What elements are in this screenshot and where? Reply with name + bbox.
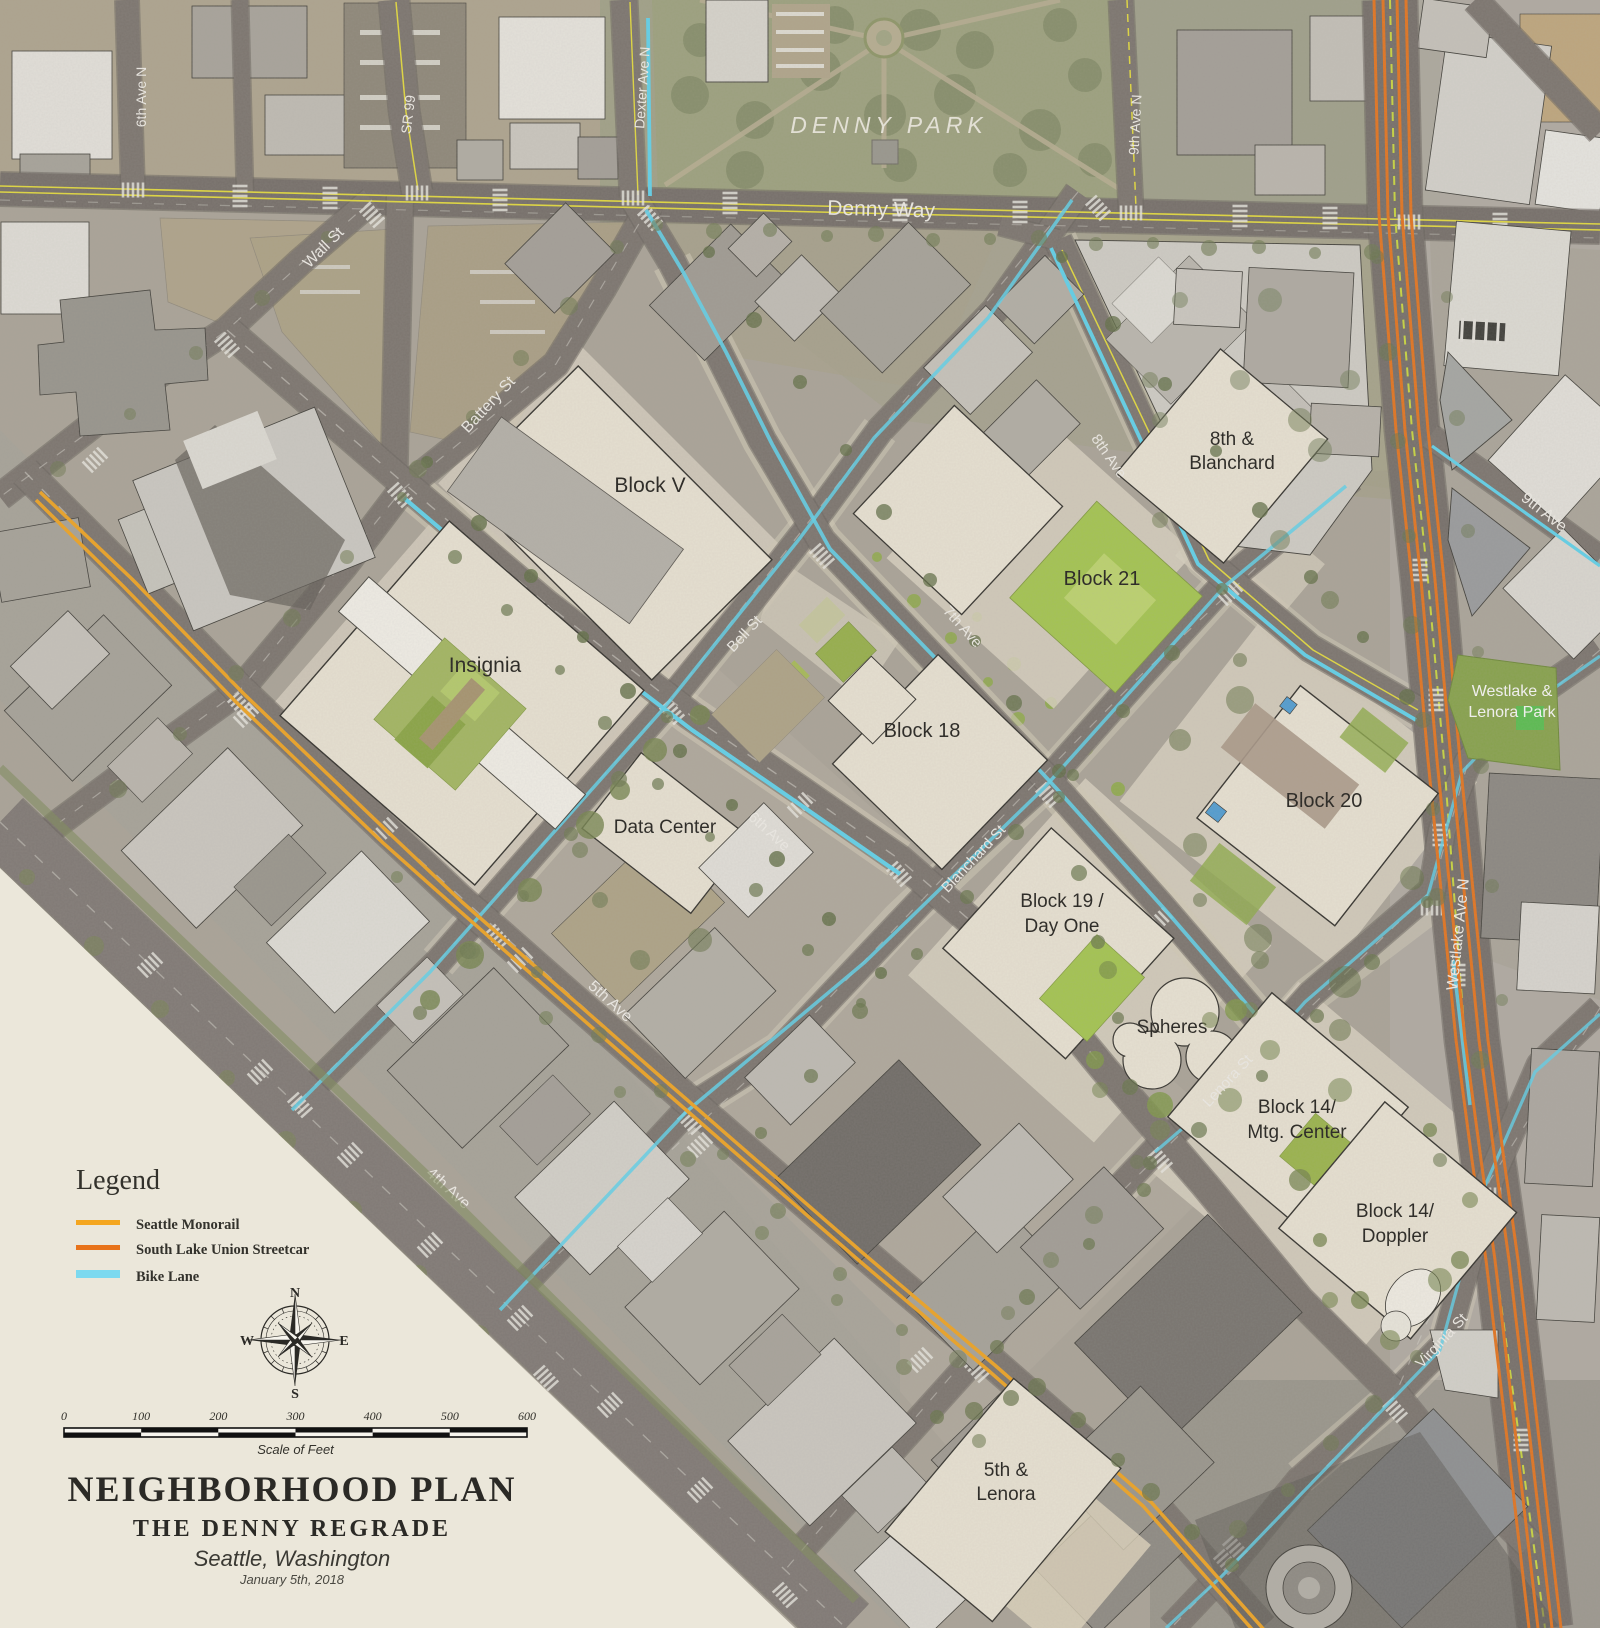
svg-text:E: E	[339, 1334, 348, 1349]
svg-text:200: 200	[209, 1409, 227, 1423]
svg-text:W: W	[240, 1334, 254, 1349]
svg-text:100: 100	[132, 1409, 150, 1423]
svg-text:Legend: Legend	[76, 1165, 160, 1196]
svg-text:400: 400	[364, 1409, 382, 1423]
svg-text:600: 600	[518, 1409, 536, 1423]
svg-text:Seattle, Washington: Seattle, Washington	[194, 1546, 391, 1571]
svg-text:Scale of Feet: Scale of Feet	[257, 1442, 335, 1457]
svg-text:South Lake Union Streetcar: South Lake Union Streetcar	[136, 1242, 310, 1258]
svg-text:Bike Lane: Bike Lane	[136, 1269, 200, 1285]
svg-text:NEIGHBORHOOD PLAN: NEIGHBORHOOD PLAN	[67, 1469, 516, 1509]
svg-text:N: N	[290, 1286, 300, 1301]
svg-text:300: 300	[286, 1409, 305, 1423]
svg-text:Seattle Monorail: Seattle Monorail	[136, 1217, 240, 1233]
svg-text:January 5th, 2018: January 5th, 2018	[239, 1572, 345, 1587]
svg-text:S: S	[291, 1387, 299, 1402]
svg-text:0: 0	[61, 1409, 67, 1423]
svg-text:500: 500	[441, 1409, 459, 1423]
svg-text:THE DENNY REGRADE: THE DENNY REGRADE	[133, 1516, 451, 1542]
